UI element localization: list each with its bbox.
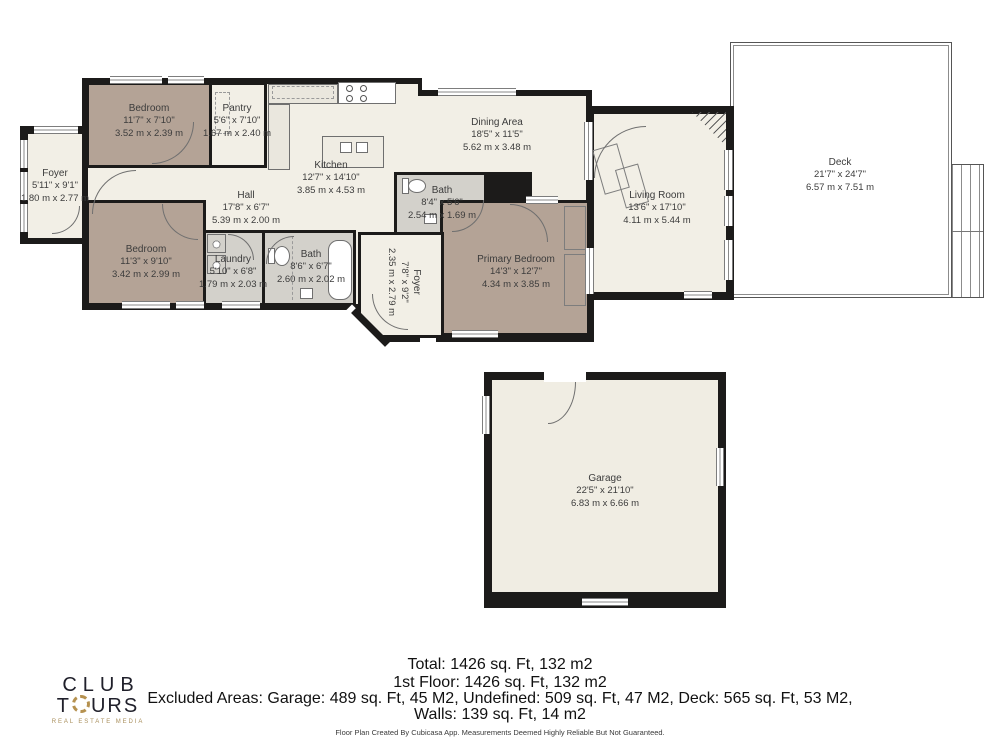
room-dim-imperial: 17'8" x 6'7" bbox=[212, 202, 280, 215]
room-dim-imperial: 7'8" x 9'2" bbox=[397, 248, 410, 316]
room-label-deck: Deck 21'7" x 24'7" 6.57 m x 7.51 m bbox=[806, 156, 874, 194]
room-name: Dining Area bbox=[463, 116, 531, 129]
room-dim-metric: 6.83 m x 6.66 m bbox=[571, 498, 639, 511]
room-dim-metric: 4.34 m x 3.85 m bbox=[477, 279, 555, 292]
room-dim-imperial: 8'4" x 5'6" bbox=[408, 197, 476, 210]
washer bbox=[207, 234, 226, 253]
room-name: Laundry bbox=[199, 253, 267, 266]
window-primary-bottom bbox=[452, 330, 498, 338]
logo-line2-end: URS bbox=[91, 695, 139, 717]
window-garage-bottom bbox=[582, 598, 628, 606]
window-foyer-left-3 bbox=[20, 204, 28, 232]
room-name: Pantry bbox=[203, 102, 271, 115]
room-label-bedroom-tl: Bedroom 11'7" x 7'10" 3.52 m x 2.39 m bbox=[115, 102, 183, 140]
room-name: Bedroom bbox=[112, 243, 180, 256]
room-label-primary: Primary Bedroom 14'3" x 12'7" 4.34 m x 3… bbox=[477, 253, 555, 291]
room-dim-metric: 4.11 m x 5.44 m bbox=[623, 215, 690, 228]
room-dim-metric: 1.79 m x 2.03 m bbox=[199, 279, 267, 292]
room-dim-imperial: 5'10" x 6'8" bbox=[199, 266, 267, 279]
stove-burner-4 bbox=[360, 95, 367, 102]
window-garage-right bbox=[716, 448, 724, 486]
window-living-right-3 bbox=[724, 240, 733, 280]
window-primary-right bbox=[585, 248, 594, 294]
window-primary-top bbox=[526, 196, 558, 204]
sink-bath-main bbox=[300, 288, 313, 299]
closet-primary-1 bbox=[564, 206, 586, 250]
window-bedroom-tl-1 bbox=[110, 76, 162, 84]
window-bedroom-bl-1 bbox=[122, 301, 170, 309]
room-label-bedroom-bl: Bedroom 11'3" x 9'10" 3.42 m x 2.99 m bbox=[112, 243, 180, 281]
window-living-right-1 bbox=[724, 150, 733, 190]
room-dim-imperial: 12'7" x 14'10" bbox=[297, 172, 365, 185]
room-name: Hall bbox=[212, 189, 280, 202]
room-dim-imperial: 11'7" x 7'10" bbox=[115, 115, 183, 128]
logo-line2: TURS bbox=[44, 695, 152, 718]
kitchen-counter-side bbox=[268, 104, 290, 170]
disclaimer-text: Floor Plan Created By Cubicasa App. Meas… bbox=[0, 728, 1000, 737]
room-label-garage: Garage 22'5" x 21'10" 6.83 m x 6.66 m bbox=[571, 472, 639, 510]
logo-aperture-icon bbox=[72, 695, 90, 713]
room-label-living: Living Room 13'6" x 17'10" 4.11 m x 5.44… bbox=[623, 189, 690, 227]
room-dim-imperial: 5'6" x 7'10" bbox=[203, 115, 271, 128]
room-dim-imperial: 5'11" x 9'1" bbox=[21, 180, 89, 193]
room-label-bath-main: Bath 8'6" x 6'7" 2.60 m x 2.02 m bbox=[277, 248, 345, 286]
room-dim-metric: 1.80 m x 2.77 m bbox=[21, 193, 89, 206]
room-name: Foyer bbox=[21, 167, 89, 180]
room-dim-metric: 6.57 m x 7.51 m bbox=[806, 182, 874, 195]
room-label-bath-top: Bath 8'4" x 5'6" 2.54 m x 1.69 m bbox=[408, 184, 476, 222]
logo-tagline: REAL ESTATE MEDIA bbox=[44, 719, 152, 725]
room-dim-imperial: 21'7" x 24'7" bbox=[806, 169, 874, 182]
kitchen-upper-cabinets bbox=[272, 86, 334, 99]
summary-total: Total: 1426 sq. Ft, 132 m2 bbox=[0, 656, 1000, 674]
window-laundry-bottom bbox=[222, 301, 260, 309]
logo-line2-start: T bbox=[57, 695, 71, 717]
room-dim-metric: 3.52 m x 2.39 m bbox=[115, 128, 183, 141]
window-dining-top bbox=[438, 88, 516, 96]
closet-primary-2 bbox=[564, 254, 586, 306]
stove-burner-2 bbox=[360, 85, 367, 92]
room-dim-imperial: 11'3" x 9'10" bbox=[112, 256, 180, 269]
door-living-deck bbox=[684, 291, 712, 299]
room-label-foyer-left: Foyer 5'11" x 9'1" 1.80 m x 2.77 m bbox=[21, 167, 89, 205]
room-dim-metric: 3.42 m x 2.99 m bbox=[112, 269, 180, 282]
room-name: Bath bbox=[277, 248, 345, 261]
window-bedroom-bl-2 bbox=[176, 301, 204, 309]
room-name: Garage bbox=[571, 472, 639, 485]
door-gap-garage bbox=[544, 372, 586, 382]
room-name: Bedroom bbox=[115, 102, 183, 115]
room-label-laundry: Laundry 5'10" x 6'8" 1.79 m x 2.03 m bbox=[199, 253, 267, 291]
room-dim-imperial: 8'6" x 6'7" bbox=[277, 261, 345, 274]
room-dim-imperial: 18'5" x 11'5" bbox=[463, 129, 531, 142]
room-dim-imperial: 22'5" x 21'10" bbox=[571, 485, 639, 498]
floor-plan-page: Bedroom 11'7" x 7'10" 3.52 m x 2.39 m Pa… bbox=[0, 0, 1000, 750]
room-dim-imperial: 14'3" x 12'7" bbox=[477, 266, 555, 279]
island-sink-2 bbox=[356, 142, 368, 153]
window-foyer-left-top bbox=[34, 126, 78, 134]
room-label-kitchen: Kitchen 12'7" x 14'10" 3.85 m x 4.53 m bbox=[297, 159, 365, 197]
room-dim-metric: 2.60 m x 2.02 m bbox=[277, 274, 345, 287]
logo-line1: CLUB bbox=[44, 674, 152, 697]
room-dim-metric: 1.67 m x 2.40 m bbox=[203, 128, 271, 141]
room-label-hall: Hall 17'8" x 6'7" 5.39 m x 2.00 m bbox=[212, 189, 280, 227]
stove-burner-3 bbox=[346, 95, 353, 102]
room-dim-imperial: 13'6" x 17'10" bbox=[623, 202, 690, 215]
island-sink-1 bbox=[340, 142, 352, 153]
window-living-right-2 bbox=[724, 196, 733, 226]
room-dim-metric: 3.85 m x 4.53 m bbox=[297, 185, 365, 198]
room-dim-metric: 2.54 m x 1.69 m bbox=[408, 210, 476, 223]
room-name: Deck bbox=[806, 156, 874, 169]
room-dim-metric: 5.39 m x 2.00 m bbox=[212, 215, 280, 228]
room-name: Bath bbox=[408, 184, 476, 197]
club-tours-logo: CLUB TURS REAL ESTATE MEDIA bbox=[44, 674, 152, 725]
room-dim-metric: 5.62 m x 3.48 m bbox=[463, 142, 531, 155]
deck-stairs-rail bbox=[952, 231, 983, 232]
room-name: Living Room bbox=[623, 189, 690, 202]
room-name: Primary Bedroom bbox=[477, 253, 555, 266]
window-foyer-left-1 bbox=[20, 140, 28, 168]
room-label-pantry: Pantry 5'6" x 7'10" 1.67 m x 2.40 m bbox=[203, 102, 271, 140]
window-garage-left bbox=[482, 396, 490, 434]
room-label-foyer-mid: Foyer 7'8" x 9'2" 2.35 m x 2.79 m bbox=[385, 248, 423, 316]
window-bedroom-tl-2 bbox=[168, 76, 204, 84]
room-name: Kitchen bbox=[297, 159, 365, 172]
room-label-dining: Dining Area 18'5" x 11'5" 5.62 m x 3.48 … bbox=[463, 116, 531, 154]
room-dim-metric: 2.35 m x 2.79 m bbox=[385, 248, 398, 316]
deck-stairs bbox=[952, 164, 984, 298]
room-name: Foyer bbox=[410, 248, 423, 316]
stove-burner-1 bbox=[346, 85, 353, 92]
